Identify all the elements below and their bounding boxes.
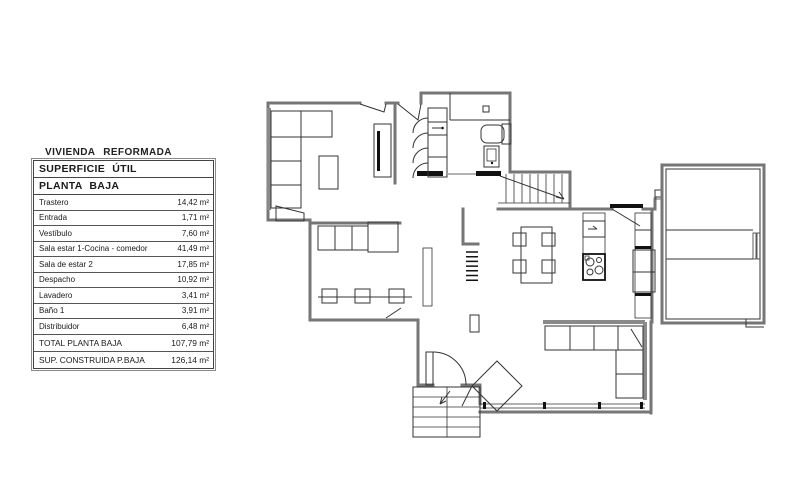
entrance-door	[426, 352, 466, 385]
office-area	[318, 222, 412, 318]
room-label: Trastero	[39, 198, 69, 207]
room-label: Entrada	[39, 213, 67, 222]
legend-header-planta: PLANTA BAJA	[34, 178, 213, 195]
sala-estar-2-furniture	[269, 110, 391, 221]
interior-staircase	[498, 174, 570, 203]
room-area: 3,91 m²	[182, 306, 209, 315]
legend-row: Vestíbulo7,60 m²	[34, 226, 213, 242]
room-area: 7,60 m²	[182, 229, 209, 238]
legend-table: SUPERFICIE ÚTIL PLANTA BAJA Trastero14,4…	[33, 160, 214, 369]
room-label: Sala estar 1-Cocina - comedor	[39, 244, 148, 253]
legend-row: Trastero14,42 m²	[34, 195, 213, 211]
bathtub	[481, 125, 504, 143]
counter-column	[635, 213, 651, 318]
tv-unit	[374, 124, 391, 177]
legend-row: Sala de estar 217,85 m²	[34, 257, 213, 273]
coffee-table	[319, 156, 338, 189]
room-label: Sala de estar 2	[39, 260, 93, 269]
radiator-mark	[466, 252, 478, 280]
room-label: Vestíbulo	[39, 229, 72, 238]
kitchen-units	[463, 209, 655, 318]
total-area: 126,14 m²	[171, 355, 209, 365]
storage-room	[662, 165, 764, 327]
room-area: 6,48 m²	[182, 322, 209, 331]
total-label: SUP. CONSTRUIDA P.BAJA	[39, 355, 145, 365]
legend-total-row: SUP. CONSTRUIDA P.BAJA126,14 m²	[34, 352, 213, 368]
legend-row: Distribuidor6,48 m²	[34, 319, 213, 335]
legend-row: Sala estar 1-Cocina - comedor41,49 m²	[34, 242, 213, 258]
room-label: Lavadero	[39, 291, 72, 300]
dining-area	[513, 227, 555, 283]
legend-row: Despacho10,92 m²	[34, 273, 213, 289]
room-label: Distribuidor	[39, 322, 79, 331]
exterior-steps	[413, 387, 480, 437]
floor-plan-drawing	[250, 85, 780, 445]
room-label: Despacho	[39, 275, 75, 284]
legend-panel: VIVIENDA REFORMADA SUPERFICIE ÚTIL PLANT…	[33, 147, 214, 369]
distribuidor-details	[423, 248, 479, 332]
room-area: 17,85 m²	[177, 260, 209, 269]
total-label: TOTAL PLANTA BAJA	[39, 338, 122, 348]
kitchen-door	[612, 209, 640, 226]
room-area: 1,71 m²	[182, 213, 209, 222]
walls	[268, 93, 662, 413]
legend-header-superficie: SUPERFICIE ÚTIL	[34, 161, 213, 178]
room-area: 41,49 m²	[177, 244, 209, 253]
legend-title: VIVIENDA REFORMADA	[33, 147, 214, 158]
entry-double-doors	[360, 104, 421, 120]
legend-total-row: TOTAL PLANTA BAJA107,79 m²	[34, 335, 213, 352]
legend-row: Lavadero3,41 m²	[34, 288, 213, 304]
total-area: 107,79 m²	[171, 338, 209, 348]
bathroom-fixtures	[450, 93, 511, 167]
column	[470, 315, 479, 332]
room-area: 10,92 m²	[177, 275, 209, 284]
legend-row: Entrada1,71 m²	[34, 211, 213, 227]
room-label: Baño 1	[39, 306, 64, 315]
living-sofa	[545, 322, 645, 398]
room-area: 3,41 m²	[182, 291, 209, 300]
screenshot-root: { "legend": { "title": "VIVIENDA REFORMA…	[0, 0, 800, 500]
room-area: 14,42 m²	[177, 198, 209, 207]
legend-row: Baño 13,91 m²	[34, 304, 213, 320]
